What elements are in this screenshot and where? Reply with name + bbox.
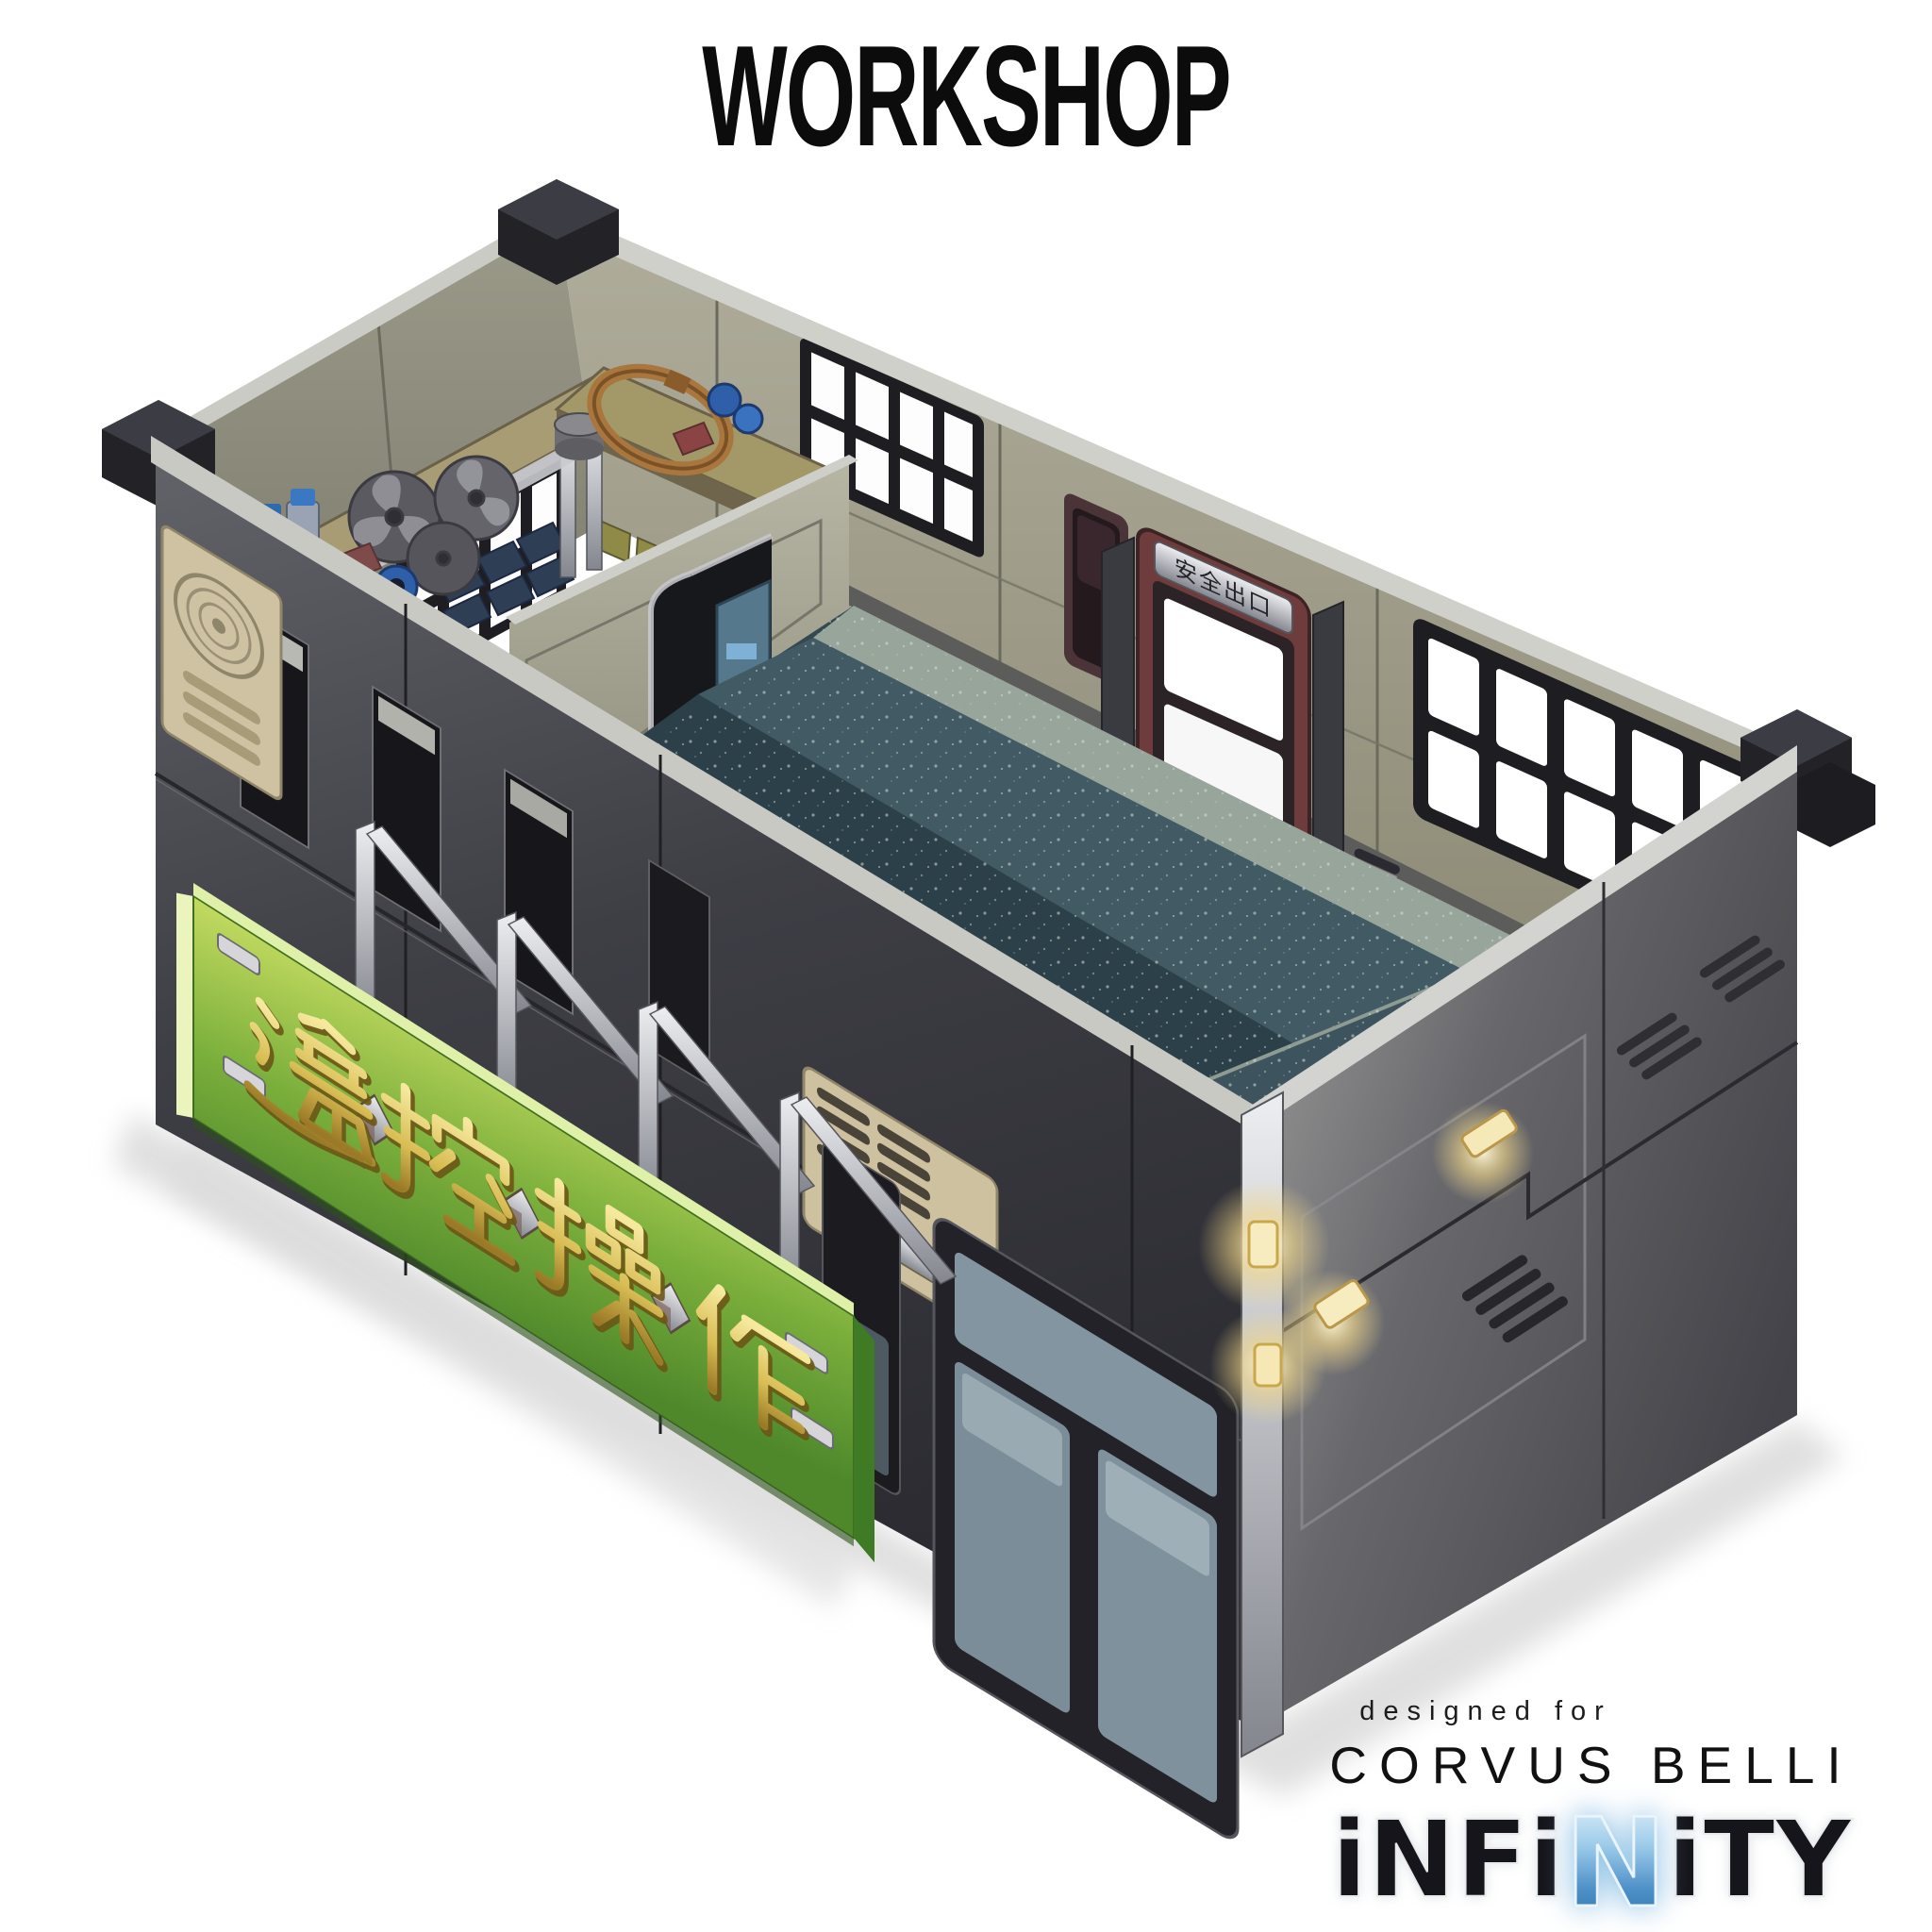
sign-end-left xyxy=(176,886,193,1125)
sign-end-right xyxy=(854,1316,874,1562)
workshop-terrain-photo: 安全出口 xyxy=(0,0,1932,1932)
product-photo-page: WORKSHOP xyxy=(0,0,1932,1932)
designed-for-text: designed for xyxy=(1207,1696,1764,1727)
infinity-logo-part1: iNFi xyxy=(1331,1799,1564,1922)
infinity-logo-accent-n: N xyxy=(1564,1791,1667,1932)
corner-light xyxy=(1255,1344,1281,1386)
corner-light xyxy=(1249,1222,1277,1267)
corvus-belli-logotype: CORVUS BELLI xyxy=(1313,1735,1870,1795)
blue-barrel-small xyxy=(734,405,762,433)
inner-door-sign xyxy=(726,643,757,659)
branding-block: designed for CORVUS BELLI iNFiNiTY xyxy=(1313,1696,1870,1928)
infinity-logo: iNFiNiTY xyxy=(1313,1799,1870,1928)
infinity-logo-part2: iTY xyxy=(1667,1799,1852,1922)
